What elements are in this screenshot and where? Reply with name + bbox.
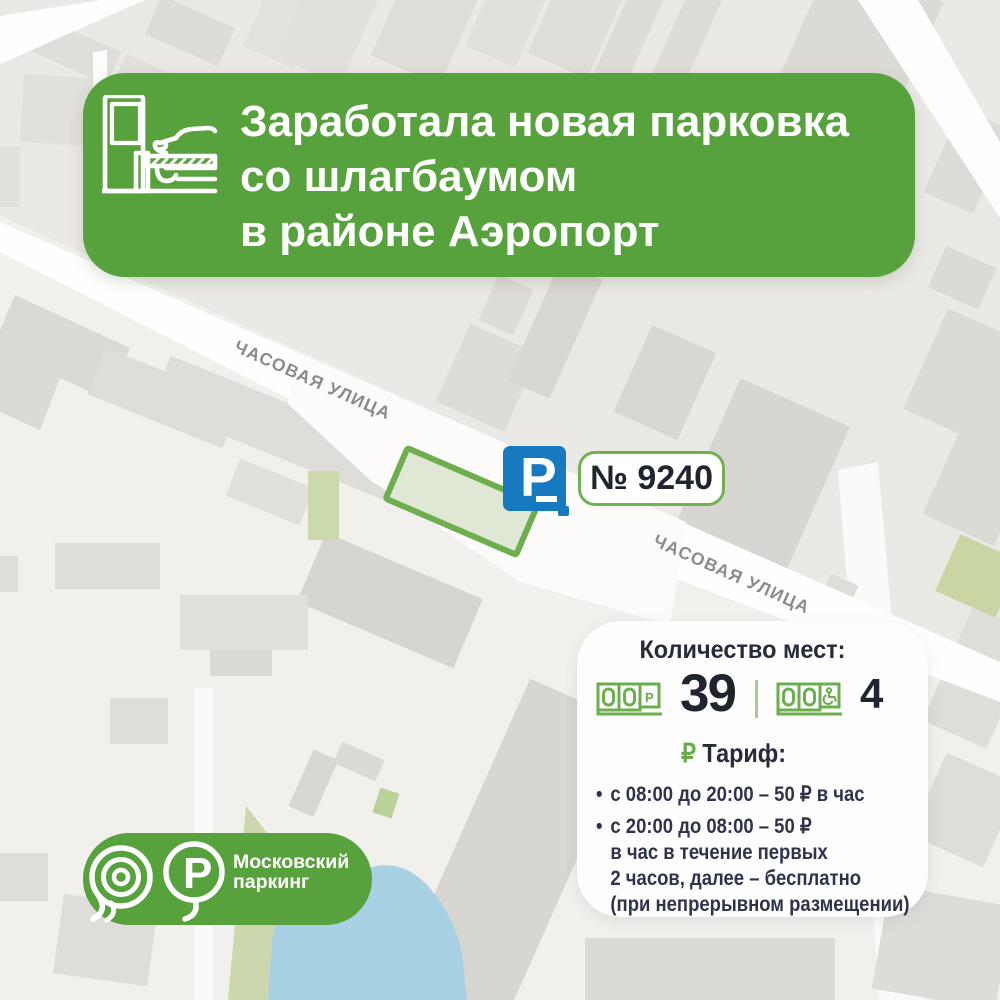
svg-text:Р: Р (183, 849, 212, 898)
svg-text:P: P (645, 690, 654, 705)
